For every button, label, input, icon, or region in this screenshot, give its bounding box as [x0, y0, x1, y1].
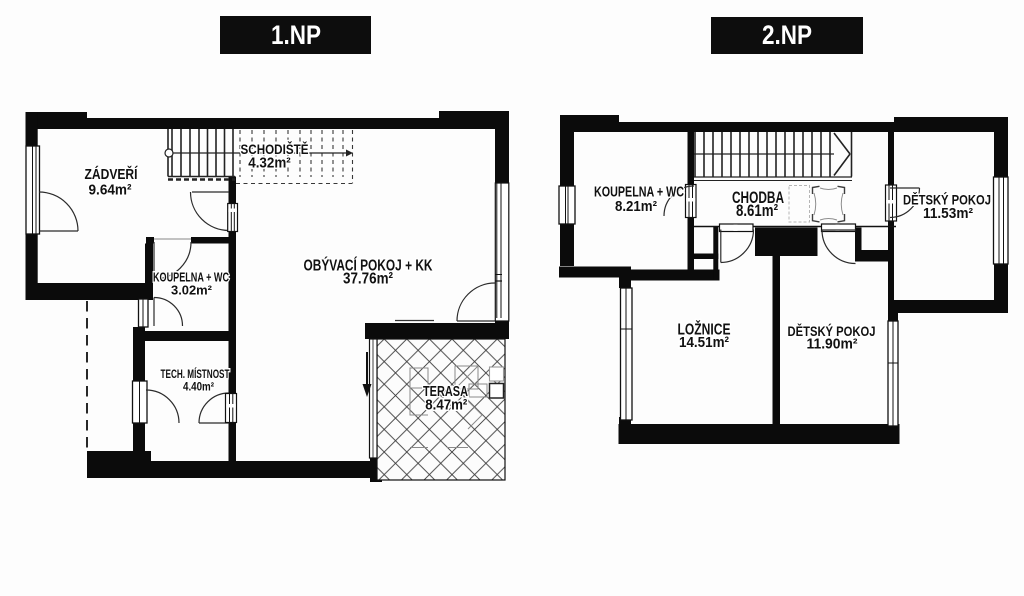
- svg-text:14.51m²: 14.51m²: [679, 334, 729, 351]
- svg-text:4.40m²: 4.40m²: [183, 380, 214, 394]
- svg-text:DĚTSKÝ POKOJ: DĚTSKÝ POKOJ: [903, 191, 991, 208]
- svg-text:11.53m²: 11.53m²: [923, 206, 973, 222]
- svg-text:3.02m²: 3.02m²: [171, 283, 213, 298]
- svg-text:11.90m²: 11.90m²: [807, 337, 858, 353]
- svg-text:8.47m²: 8.47m²: [425, 397, 467, 414]
- svg-text:8.61m²: 8.61m²: [736, 202, 778, 220]
- svg-text:1.NP: 1.NP: [271, 20, 321, 50]
- svg-text:9.64m²: 9.64m²: [89, 182, 132, 199]
- svg-text:ZÁDVEŘÍ: ZÁDVEŘÍ: [85, 165, 139, 183]
- svg-text:4.32m²: 4.32m²: [248, 156, 291, 172]
- svg-text:2.NP: 2.NP: [762, 20, 812, 50]
- svg-text:SCHODIŠTĚ: SCHODIŠTĚ: [241, 140, 309, 157]
- svg-text:8.21m²: 8.21m²: [615, 199, 657, 215]
- svg-text:37.76m²: 37.76m²: [343, 271, 393, 288]
